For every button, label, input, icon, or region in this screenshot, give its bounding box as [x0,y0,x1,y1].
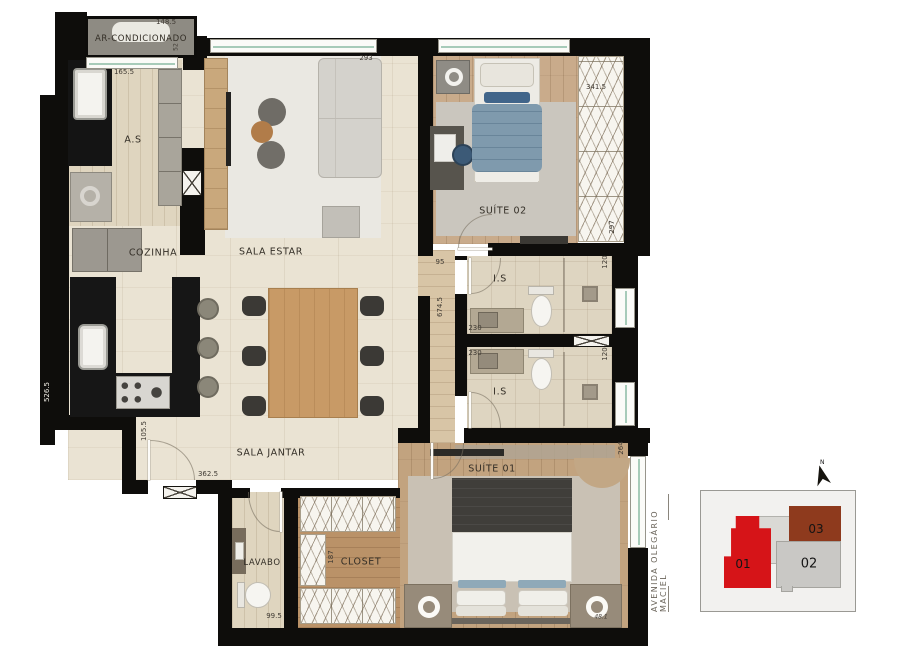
window-glass [625,291,627,325]
closet-wardrobe-top [300,496,396,532]
suite02-pillow [480,63,534,87]
bar-stool [197,376,219,398]
cooktop [116,376,170,409]
living-window [210,39,377,53]
suite02-blanket [472,104,542,172]
window-glass [213,46,374,48]
room-label-as: A.S [124,135,141,146]
suite01-sheet [452,532,572,582]
measurement: 674.5 [436,297,444,317]
north-arrow-icon [807,461,836,490]
suite01-door-leaf [431,443,433,479]
wall [122,415,136,494]
measurement: 341.5 [586,83,606,91]
window-glass [638,459,640,545]
duct-shaft [182,170,202,196]
suite01-blanket [452,478,572,534]
wall [180,148,205,255]
is-upper-shower-divider [563,258,565,332]
wall [196,480,222,494]
key-plan: 01 02 03 [700,490,856,612]
measurement: 99.5 [266,612,282,620]
laundry-tank-sink [73,68,107,120]
lavabo-door-leaf [280,492,282,532]
closet-wardrobe-bottom [300,588,396,624]
is-upper-shower-drain [582,286,598,302]
measurement: 230 [468,324,481,332]
room-label-lavabo: LAVABO [243,558,280,568]
floorplan-canvas: AR-CONDICIONADO A.S COZINHA SALA ESTAR S… [0,0,906,650]
measurement: 264 [617,441,625,454]
measurement: 120 [601,347,609,360]
street-line [668,494,669,520]
measurement: 526.5 [43,382,51,402]
entry-door-leaf [148,440,150,480]
suite01-pillow-stripe [518,580,566,588]
wall [628,443,648,456]
room-label-suite02: SUÍTE 02 [479,206,527,217]
tv-screen [226,92,231,166]
is-upper-window [615,288,635,328]
wall [418,296,430,443]
wall [218,628,648,646]
is-lower-toilet-tank [528,349,554,358]
suite02-accent-pillow [484,92,530,103]
keyplan-unit-03-number: 03 [808,522,823,536]
measurement: 230 [468,349,481,357]
dining-chair [360,296,384,316]
is-upper-door-leaf [469,258,471,294]
sofa [318,58,382,178]
measurement: 187 [327,550,335,563]
window-glass [625,385,627,423]
room-label-closet: CLOSET [341,557,382,568]
tv-sideboard [204,58,228,230]
lavabo-toilet-tank [237,582,245,608]
washer-door-icon [80,186,100,206]
is-lower-door-leaf [469,392,471,428]
suite01-pillow [518,606,568,616]
is-lower-shower-divider [563,352,565,426]
wall [455,256,467,260]
desk-chair [452,144,474,166]
suite02-bed-foot [476,172,538,182]
room-label-is-upper: I.S [493,274,507,285]
is-upper-toilet-bowl [531,295,552,327]
keyplan-unit-01-number: 01 [735,557,750,571]
bar-stool [197,337,219,359]
keyplan-unit-02-tab [781,586,793,592]
suite02-bench [520,236,568,244]
bar-stool [197,298,219,320]
duct-shaft [163,486,197,499]
room-label-sala-estar: SALA ESTAR [239,247,303,258]
coffee-table-wood [251,121,273,143]
suite01-pillow [456,606,506,616]
room-label-cozinha: COZINHA [129,248,177,259]
suite02-door-leaf [458,248,492,250]
coffee-table-small [257,141,285,169]
sofa-ottoman [322,206,360,238]
lamp-icon [418,596,440,618]
keyplan-unit-02-number: 02 [801,557,818,572]
wall [218,480,232,628]
laundry-cabinets [158,68,182,206]
dining-chair [242,296,266,316]
kitchen-sink [78,324,108,370]
window-glass [441,46,567,48]
suite01-window [630,456,646,548]
suite01-headboard [450,618,574,624]
is-lower-toilet-bowl [531,358,552,390]
clock-face-icon [445,68,463,86]
room-label-is-lower: I.S [493,387,507,398]
measurement: 120 [601,255,609,268]
wall [628,548,648,630]
dining-chair [242,396,266,416]
wall [284,488,298,628]
dining-chair [360,346,384,366]
suite01-pillow [456,590,506,606]
measurement: 52 [173,43,180,51]
room-label-sala-jantar: SALA JANTAR [237,448,306,459]
lavabo-toilet-bowl [245,582,271,608]
dining-chair [360,396,384,416]
is-upper-toilet-tank [528,286,554,295]
street-line [668,586,669,612]
measurement: 293 [359,54,372,62]
closet-wardrobe-left [300,534,326,586]
dining-chair [242,346,266,366]
dining-table [268,288,358,418]
suite01-pillow [518,590,568,606]
measurement: 105.5 [140,421,148,441]
duct-shaft [573,335,610,347]
measurement: 148.5 [156,18,176,26]
room-label-suite01: SUÍTE 01 [468,464,516,475]
measurement: 48.1 [594,614,607,621]
measurement: 165.5 [114,68,134,76]
measurement: 297 [608,220,616,233]
wall [624,38,650,243]
window-glass [89,63,175,65]
street-label: AVENIDA OLEGÁRIO MACIEL [650,496,668,612]
suite02-window [438,39,570,53]
wall [55,30,69,430]
measurement: 95 [436,258,445,266]
is-lower-shower-drain [582,384,598,400]
measurement: 362.5 [198,470,218,478]
suite01-pillow-stripe [458,580,506,588]
is-lower-window [615,382,635,426]
